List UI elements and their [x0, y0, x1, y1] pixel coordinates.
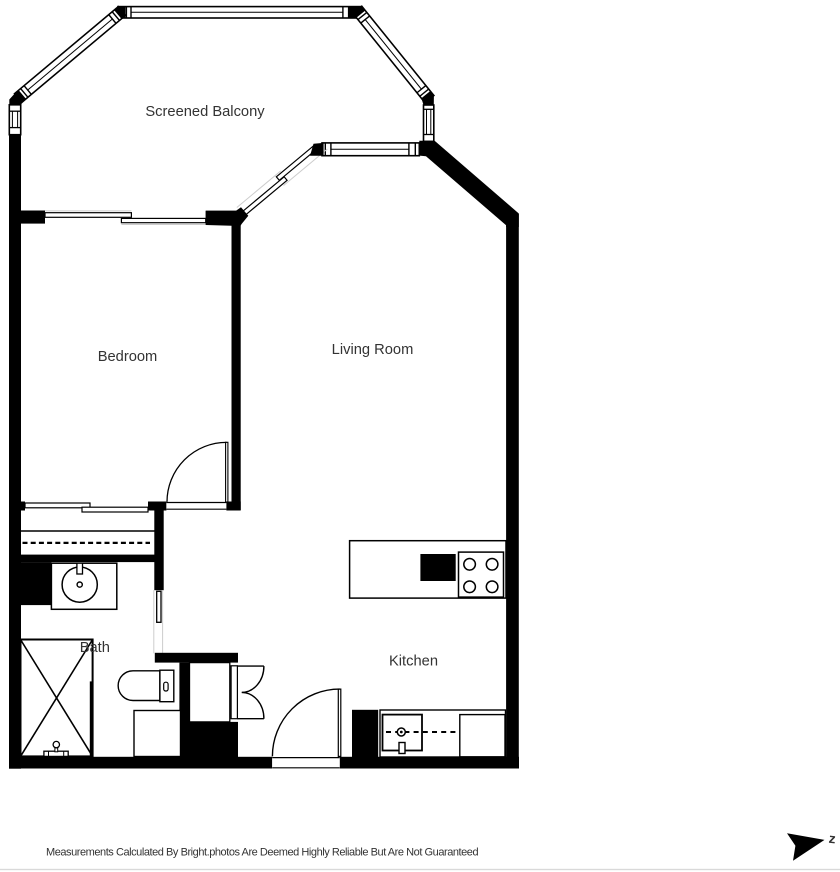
svg-text:Measurements Calculated By Bri: Measurements Calculated By Bright.photos…	[46, 846, 478, 858]
svg-text:Screened Balcony: Screened Balcony	[145, 104, 265, 120]
svg-text:Living Room: Living Room	[332, 342, 414, 358]
svg-text:Bedroom: Bedroom	[98, 349, 158, 365]
svg-text:Kitchen: Kitchen	[389, 653, 438, 669]
svg-text:Bath: Bath	[80, 640, 110, 656]
